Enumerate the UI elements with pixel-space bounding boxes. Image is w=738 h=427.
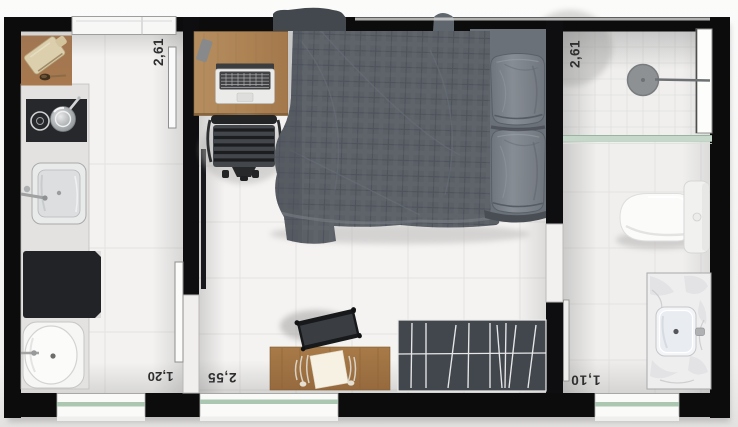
svg-text:2,61: 2,61 bbox=[568, 40, 583, 68]
svg-text:2,61: 2,61 bbox=[151, 38, 166, 66]
svg-text:2,55: 2,55 bbox=[207, 370, 236, 385]
svg-text:1,10: 1,10 bbox=[570, 373, 600, 388]
svg-text:1,20: 1,20 bbox=[147, 369, 173, 384]
